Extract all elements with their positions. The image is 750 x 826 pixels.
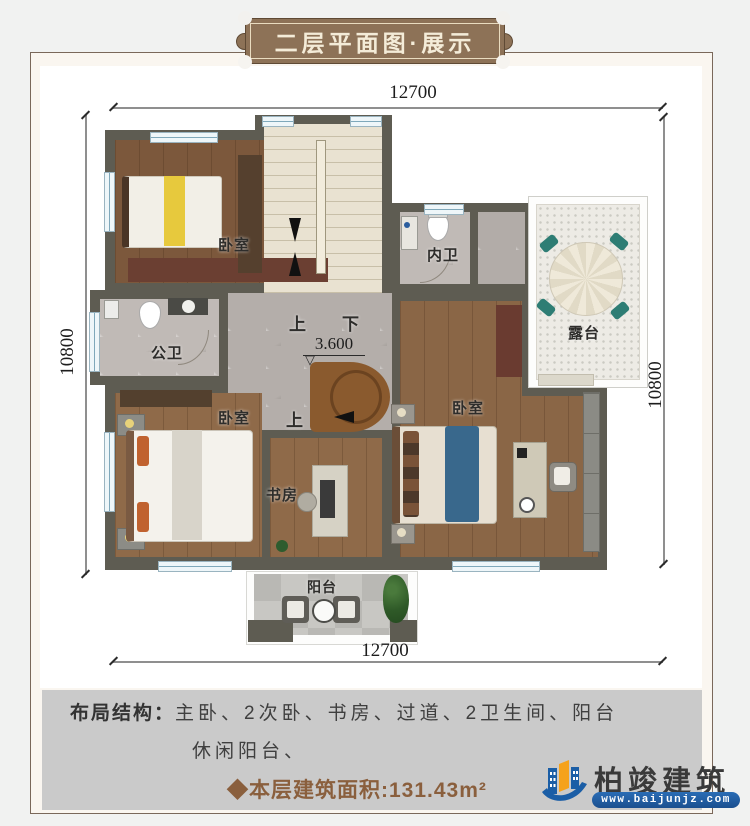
- room-closet-floor: [478, 212, 525, 284]
- logo-mark-icon: [538, 756, 590, 808]
- bed-top-left-yellow-throw: [164, 176, 185, 246]
- stair-arrow-up-icon: [289, 252, 301, 276]
- vanity-inner-bath-faucet: [404, 222, 410, 228]
- master-tv: [517, 448, 527, 458]
- dim-left-label: 10800: [57, 312, 79, 392]
- stair-arrow-down-icon: [289, 218, 301, 242]
- dim-line-top: [113, 107, 663, 109]
- stair-center-rail: [316, 140, 326, 274]
- elevation-mark-icon: ▽: [305, 352, 315, 368]
- dim-right-label: 10800: [645, 345, 667, 425]
- room-label-public-bath: 公卫: [151, 342, 183, 363]
- footer-layout-line2: 休闲阳台、: [192, 736, 307, 763]
- nightstand-m-1-lamp: [397, 408, 406, 417]
- room-label-bedroom-top-left: 卧室: [218, 234, 250, 255]
- bed-bottom-left-pillow-2: [137, 502, 149, 532]
- page-title: 二层平面图·展示: [275, 24, 476, 58]
- dim-line-right: [663, 117, 665, 565]
- vanity-public-bath-sink: [182, 300, 195, 313]
- room-label-terrace: 露台: [568, 322, 600, 343]
- footer-layout-items: 主卧、2次卧、书房、过道、2卫生间、阳台: [175, 703, 618, 724]
- master-chair-cushion: [554, 467, 570, 485]
- washer-public-bath: [104, 300, 119, 319]
- study-plant: [276, 540, 288, 552]
- vanity-inner-bath: [401, 216, 418, 250]
- master-wardrobe-upper: [496, 305, 522, 377]
- balcony-chair-2-cushion: [338, 601, 355, 618]
- dim-top-label: 12700: [373, 82, 453, 104]
- stair-label-up: 上: [289, 310, 307, 335]
- stair-label-down: 下: [342, 310, 360, 335]
- master-tv-stand-dot: [519, 497, 535, 513]
- window-bottomleft-left: [104, 432, 115, 512]
- bed-master-pillows: [403, 431, 419, 517]
- nightstand-bl-1-lamp: [125, 419, 134, 428]
- window-topleft-top: [150, 132, 218, 143]
- wardrobe-bottom-left: [120, 390, 212, 407]
- bed-master-blue-runner: [445, 426, 479, 522]
- room-label-balcony: 阳台: [307, 577, 337, 597]
- bed-bottom-left-pillow-1: [137, 436, 149, 466]
- study-chair: [297, 492, 317, 512]
- window-bottomleft-bottom: [158, 561, 232, 572]
- title-badge-notch: [496, 11, 510, 25]
- footer-layout-label: 布局结构：: [70, 703, 175, 724]
- balcony-table: [312, 599, 336, 623]
- study-laptop: [320, 480, 335, 518]
- title-badge-notch: [238, 11, 252, 25]
- bed-bottom-left-blanket: [172, 430, 202, 540]
- room-label-study: 书房: [266, 484, 298, 505]
- room-label-bedroom-bottom-left: 卧室: [218, 407, 250, 428]
- title-badge: 二层平面图·展示: [245, 18, 505, 64]
- footer-layout-line1: 布局结构：主卧、2次卧、书房、过道、2卫生间、阳台: [70, 698, 618, 725]
- dim-line-left: [85, 115, 87, 575]
- title-badge-notch: [238, 55, 252, 69]
- title-badge-notch: [496, 55, 510, 69]
- window-stair-top-1: [262, 116, 294, 127]
- balcony-stub-left: [248, 620, 293, 642]
- master-closet-column: [583, 392, 600, 552]
- logo-url: www.baijunjz.com: [601, 794, 731, 806]
- footer-area-text: ◆本层建筑面积:131.43m²: [227, 774, 487, 804]
- balcony-chair-1-cushion: [287, 601, 304, 618]
- window-master-bottom: [452, 561, 540, 572]
- balcony-stub-right: [390, 620, 417, 642]
- umbrella-table-icon: [549, 242, 623, 316]
- window-innerbath-top: [424, 204, 464, 215]
- spiral-stair-arrow-icon: [334, 411, 354, 423]
- dim-bottom-label: 12700: [345, 640, 425, 662]
- room-label-inner-bath: 内卫: [427, 244, 459, 265]
- wardrobe-top-left: [238, 155, 262, 273]
- terrace-door-sill: [538, 374, 594, 386]
- stair-label-up-spiral: 上: [286, 406, 304, 431]
- logo-url-bar: www.baijunjz.com: [592, 792, 740, 808]
- window-publicbath-left: [89, 312, 100, 372]
- window-stair-top-2: [350, 116, 382, 127]
- nightstand-m-2-lamp: [397, 528, 406, 537]
- room-label-bedroom-master: 卧室: [452, 397, 484, 418]
- window-topleft-left: [104, 172, 115, 232]
- balcony-plant: [383, 575, 409, 623]
